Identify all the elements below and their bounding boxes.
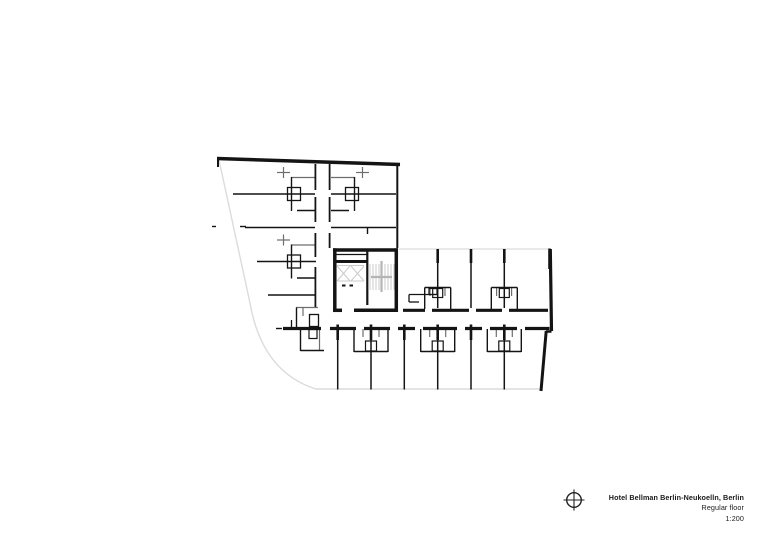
project-title: Hotel Bellman Berlin-Neukoelln, Berlin [594,493,744,503]
survey-marker-icon [561,487,587,513]
title-block: Hotel Bellman Berlin-Neukoelln, Berlin R… [561,487,744,524]
scale-label: 1:200 [594,514,744,524]
floor-label: Regular floor [594,503,744,513]
floor-plan [0,0,780,552]
title-block-text: Hotel Bellman Berlin-Neukoelln, Berlin R… [594,493,744,524]
